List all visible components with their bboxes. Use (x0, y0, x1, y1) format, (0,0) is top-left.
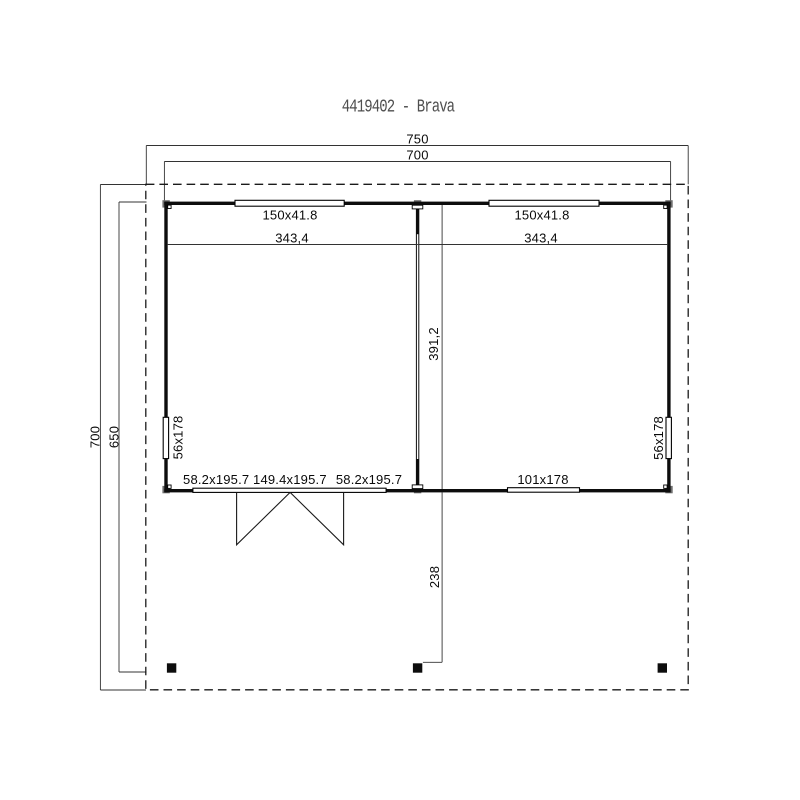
svg-text:149.4x195.7: 149.4x195.7 (253, 472, 327, 487)
svg-text:391,2: 391,2 (426, 327, 441, 361)
svg-text:150x41.8: 150x41.8 (262, 208, 317, 223)
svg-text:700: 700 (88, 426, 103, 448)
svg-text:650: 650 (106, 426, 121, 448)
svg-text:56x178: 56x178 (171, 416, 186, 460)
svg-text:58.2x195.7: 58.2x195.7 (336, 472, 402, 487)
svg-text:101x178: 101x178 (517, 472, 568, 487)
svg-text:238: 238 (427, 566, 442, 588)
svg-text:700: 700 (406, 147, 428, 162)
svg-text:150x41.8: 150x41.8 (514, 208, 569, 223)
svg-text:56x178: 56x178 (651, 416, 666, 460)
svg-text:343,4: 343,4 (524, 231, 558, 246)
svg-text:4419402 - Brava: 4419402 - Brava (342, 96, 456, 117)
svg-text:750: 750 (406, 131, 428, 146)
svg-text:343,4: 343,4 (275, 231, 309, 246)
svg-text:58.2x195.7: 58.2x195.7 (183, 472, 249, 487)
